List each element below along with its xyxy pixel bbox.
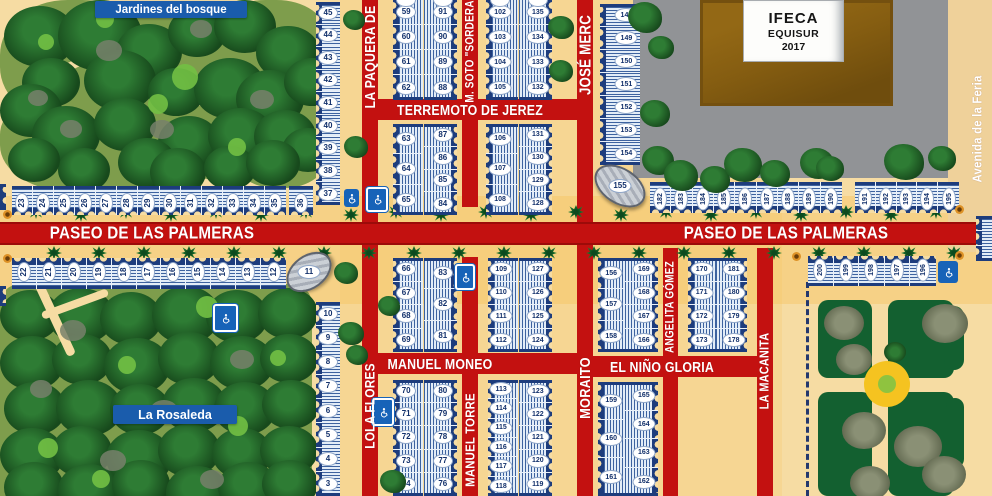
caseta-cap [938,182,959,185]
caseta: 82 [424,289,457,320]
caseta-number: 66 [396,262,416,276]
caseta-cap [424,258,457,261]
caseta: 104 [486,50,518,75]
caseta: 188 [778,182,799,213]
caseta: 122 [519,403,552,426]
caseta: 110 [488,282,518,306]
ground-patch [60,320,86,341]
caseta-cap [261,286,286,289]
caseta-group-col-45-37: 454443424140393837 [316,2,340,205]
caseta-number: 120 [526,454,549,468]
caseta-number: 36 [294,193,308,213]
caseta-number: 129 [526,173,549,187]
caseta-cap [393,124,423,127]
caseta-cap [161,286,185,289]
caseta: 5 [316,423,340,447]
wheelchair-icon [938,261,958,283]
caseta-number: 62 [396,81,416,95]
street-label-manuel-moneo: MANUEL MONEO [388,356,493,373]
caseta-number: 76 [433,477,453,491]
tree-icon [346,345,368,365]
caseta-cap [625,258,658,261]
caseta-number: 13 [241,262,255,282]
caseta-cap [393,258,423,261]
caseta-cap [625,382,658,385]
caseta: 119 [519,473,552,496]
caseta: 90 [424,25,457,50]
awning-edge [600,50,606,72]
ifeca-sign-title: IFECA [769,10,819,27]
caseta-group-row-200-196: 200199198197196 [808,256,936,286]
light-foliage [228,138,246,156]
caseta-cap [75,186,95,189]
caseta: 41 [316,92,340,115]
palm-tree-icon [568,205,584,219]
caseta: 200 [808,256,834,286]
street-label-lola-flores: LOLA FLORES [362,363,377,448]
ifeca-sign-subtitle: EQUISUR [768,28,819,40]
caseta-number: 14 [216,262,230,282]
caseta-number: 70 [396,384,416,398]
tree-cluster [262,380,320,429]
caseta-number: 5 [318,428,338,442]
caseta: 26 [75,186,96,215]
caseta-number: 110 [490,286,513,300]
caseta-group-col-102-105: 102103104105 [486,0,518,100]
scrub-patch [842,412,886,449]
caseta-cap [625,349,658,352]
caseta: 24 [33,186,54,215]
caseta: 43 [316,47,340,70]
scrub-patch [836,344,872,375]
caseta: 17 [137,258,162,289]
caseta: 27 [96,186,117,215]
caseta-number: 187 [760,188,774,211]
caseta-number: 130 [526,151,549,165]
la-rosaleda-label: La Rosaleda [113,405,237,424]
caseta-group-col-106-108: 106107108 [486,124,518,215]
caseta-group-col-169-166: 169168167166 [625,258,658,352]
caseta-number: 45 [318,6,338,20]
caseta: 149 [600,27,640,50]
caseta-cap [859,283,884,286]
caseta: 87 [424,124,457,147]
paseo-label-left: PASEO DE LAS PALMERAS [50,224,254,244]
caseta-group-caseta-36: 36 [289,186,313,215]
caseta: 129 [519,170,552,193]
boundary-dashed-line [806,282,809,496]
caseta-number: 199 [839,258,853,281]
caseta-number: 10 [318,307,338,321]
caseta [0,286,6,306]
caseta: 16 [161,258,186,289]
caseta: 106 [486,124,518,154]
caseta-number: 166 [632,333,655,347]
caseta: 10 [316,302,340,326]
caseta-number: 40 [318,119,338,133]
caseta: 86 [424,147,457,170]
caseta-number: 60 [396,30,416,44]
caseta: 61 [393,50,423,75]
caseta-number: 18 [117,262,131,282]
tree-icon [378,296,400,316]
caseta-cap [393,97,423,100]
caseta: 79 [424,403,457,426]
caseta-cap [33,186,53,189]
caseta: 196 [910,256,936,286]
caseta-cap [62,286,86,289]
street-label-terremoto-de-jerez: TERREMOTO DE JEREZ [397,102,543,119]
caseta: 36 [289,186,313,215]
wheelchair-icon [366,187,388,212]
caseta: 181 [716,258,747,282]
caseta-number: 64 [396,162,416,176]
caseta-number: 63 [396,132,416,146]
caseta: 170 [688,258,719,282]
caseta-cap [834,283,859,286]
caseta-cap [137,286,161,289]
caseta-number: 178 [722,333,745,347]
caseta: 29 [138,186,159,215]
caseta: 73 [393,450,423,473]
caseta-number: 169 [632,262,655,276]
caseta-cap [716,349,747,352]
caseta-cap [316,202,340,205]
caseta-cap [519,258,552,261]
street-label-jose-merce: JOSÉ MERC [576,15,594,95]
caseta-number: 73 [396,454,416,468]
caseta-number: 3 [318,477,338,491]
caseta [976,246,992,261]
wheelchair-icon [213,304,238,332]
caseta: 199 [834,256,860,286]
caseta: 112 [488,329,518,353]
caseta-group-col-83-81: 838281 [424,258,457,352]
caseta: 169 [625,258,658,282]
caseta-cap [598,349,628,352]
caseta-number: 87 [433,128,453,142]
caseta-number: 160 [600,432,623,446]
caseta-cap [486,124,518,127]
tree-icon [380,470,406,493]
caseta: 39 [316,137,340,160]
caseta-number: 116 [490,440,513,454]
tree-icon [628,2,662,33]
caseta-number: 24 [36,193,50,213]
caseta-number: 127 [526,262,549,276]
caseta-number: 163 [632,446,655,460]
caseta-cap [96,186,116,189]
caseta-number: 59 [396,5,416,19]
light-foliage [92,470,110,488]
light-foliage [270,350,286,366]
caseta-number: 195 [942,188,956,211]
caseta: 158 [598,321,628,352]
caseta-cap [138,186,158,189]
caseta-number: 168 [632,286,655,300]
caseta: 167 [625,305,658,329]
caseta-cap [0,286,6,289]
street-label-la-paquera-de: LA PAQUERA DE [362,6,379,109]
caseta-cap [112,286,136,289]
caseta: 81 [424,321,457,352]
caseta-number: 78 [433,430,453,444]
caseta-cap [37,286,61,289]
palm-tree-icon [361,246,377,260]
caseta-cap [202,186,222,189]
caseta-number: 119 [526,477,549,491]
caseta-cap [855,182,875,185]
caseta: 32 [202,186,223,215]
caseta-number: 200 [813,258,827,281]
caseta: 161 [598,458,628,496]
caseta: 133 [519,50,552,75]
caseta: 77 [424,450,457,473]
caseta-cap [160,186,180,189]
caseta-cap [821,182,842,185]
ground-patch [200,470,224,489]
caseta-group-row-23-35: 23242526272829303132333435 [12,186,286,215]
caseta: 178 [716,329,747,353]
caseta: 107 [486,154,518,184]
caseta-group-col-87-84: 87868584 [424,124,457,215]
caseta-number: 9 [318,331,338,345]
caseta: 154 [600,142,640,165]
caseta: 160 [598,420,628,458]
caseta: 115 [488,419,518,438]
caseta: 20 [62,258,87,289]
tree-icon [928,146,956,171]
caseta: 113 [488,380,518,399]
tree-icon [724,148,762,182]
ground-patch [100,450,126,471]
caseta-number: 16 [166,262,180,282]
caseta-number: 196 [916,258,930,281]
caseta-cap [519,349,552,352]
caseta: 85 [424,170,457,193]
lamp-icon [3,210,12,219]
street-label-m-soto-sordera: M. SOTO "SORDERA" [463,0,476,103]
caseta-number: 133 [526,55,549,69]
caseta: 131 [519,124,552,147]
caseta-cap [598,258,628,261]
caseta: 63 [393,124,423,154]
caseta-group-col-91-88: 91908988 [424,0,457,100]
caseta-number: 132 [526,81,549,95]
caseta-number: 191 [858,188,872,211]
street-label-manuel-torre: MANUEL TORRE [462,393,477,487]
tree-icon [816,156,844,181]
caseta-number: 121 [526,430,549,444]
caseta-number: 41 [318,96,338,110]
caseta: 21 [37,258,62,289]
tree-icon [338,322,364,345]
caseta-number: 150 [615,54,638,68]
caseta: 186 [735,182,756,213]
caseta: 89 [424,50,457,75]
lamp-icon [955,205,964,214]
caseta: 80 [424,380,457,403]
caseta: 182 [650,182,671,213]
caseta-cap [316,302,340,305]
palm-tree-icon [343,208,359,222]
caseta: 35 [265,186,286,215]
caseta-number: 88 [433,81,453,95]
caseta: 45 [316,2,340,25]
caseta [976,231,992,246]
caseta-cap [117,186,137,189]
caseta: 191 [855,182,876,213]
caseta-number: 134 [526,30,549,44]
caseta-number: 180 [722,286,745,300]
caseta: 156 [598,258,628,289]
caseta: 173 [688,329,719,353]
tree-icon [664,160,698,191]
caseta-cap [0,303,6,306]
caseta-cap [808,283,833,286]
caseta-number: 6 [318,404,338,418]
caseta: 4 [316,448,340,472]
caseta: 25 [54,186,75,215]
caseta [976,216,992,231]
caseta: 9 [316,326,340,350]
caseta-number: 65 [396,193,416,207]
caseta: 19 [87,258,112,289]
caseta-cap [244,186,264,189]
caseta-cap [393,212,423,215]
caseta: 30 [160,186,181,215]
caseta-number: 114 [490,401,513,415]
caseta-number: 15 [191,262,205,282]
caseta-cap [393,380,423,383]
caseta-cap [486,212,518,215]
caseta-number: 173 [690,333,713,347]
awning-edge [600,4,606,26]
caseta-number: 67 [396,286,416,300]
scrub-patch [922,456,966,493]
caseta-number: 149 [615,31,638,45]
caseta-number: 79 [433,407,453,421]
caseta-number: 20 [67,262,81,282]
ground-patch [250,90,274,109]
caseta-group-col-113-118: 113114115116117118 [488,380,518,496]
caseta-number: 80 [433,384,453,398]
caseta-number: 44 [318,28,338,42]
caseta-group-col-59-62: 59606162 [393,0,423,100]
caseta-number: 90 [433,30,453,44]
light-foliage [38,438,58,458]
ground-patch [96,40,122,61]
palm-tree-icon [613,208,629,222]
caseta: 159 [598,382,628,420]
caseta-number: 82 [433,297,453,311]
caseta-number: 68 [396,309,416,323]
caseta-number: 109 [490,262,513,276]
caseta-group-col-10-3: 109876543 [316,302,340,496]
lamp-icon [3,254,12,263]
caseta: 33 [223,186,244,215]
caseta-number: 122 [526,407,549,421]
awning-edge [600,119,606,141]
caseta: 150 [600,50,640,73]
caseta: 44 [316,25,340,48]
caseta: 76 [424,473,457,496]
caseta-cap [181,186,201,189]
caseta: 134 [519,25,552,50]
caseta: 180 [716,282,747,306]
caseta: 197 [885,256,911,286]
caseta: 71 [393,403,423,426]
caseta: 105 [486,75,518,100]
caseta: 121 [519,426,552,449]
palm-tree-icon [766,246,782,260]
caseta-number: 30 [163,193,177,213]
caseta-number: 115 [490,421,513,435]
caseta-number: 111 [490,309,513,323]
street-label-la-macanita: LA MACANITA [758,333,771,410]
caseta-number: 17 [141,262,155,282]
stage-number: 155 [609,179,632,193]
tree-icon [549,60,573,82]
caseta-number: 104 [489,55,512,69]
caseta: 123 [519,380,552,403]
caseta-number: 102 [489,5,512,19]
ifeca-sign: IFECA EQUISUR 2017 [743,0,844,62]
caseta-group-col-edge-right [976,216,992,261]
caseta: 23 [12,186,33,215]
caseta-number: 103 [489,30,512,44]
caseta-group-edge-left-b [0,286,6,306]
caseta-cap [424,349,457,352]
caseta: 7 [316,375,340,399]
caseta-number: 156 [600,266,623,280]
caseta-cap [897,182,917,185]
caseta: 38 [316,160,340,183]
caseta-number: 125 [526,309,549,323]
caseta-group-col-165-162: 165164163162 [625,382,658,496]
caseta-number: 61 [396,55,416,69]
caseta-cap [12,286,36,289]
ground-patch [30,380,52,398]
light-foliage [148,94,168,114]
stage-number: 11 [298,265,321,279]
caseta-cap [519,124,552,127]
wheelchair-icon [455,264,475,290]
caseta-number: 167 [632,309,655,323]
caseta-number: 22 [17,262,31,282]
caseta: 83 [424,258,457,289]
caseta: 88 [424,75,457,100]
caseta-number: 12 [267,262,281,282]
caseta: 163 [625,439,658,468]
caseta: 37 [316,182,340,205]
avenida-de-la-feria-label: Avenida de la Feria [969,75,984,182]
caseta-group-col-127-124: 127126125124 [519,258,552,352]
caseta-number: 158 [600,329,623,343]
caseta: 15 [186,258,211,289]
caseta: 125 [519,305,552,329]
caseta-number: 161 [600,470,623,484]
ground-patch [230,350,254,369]
caseta-cap [486,97,518,100]
caseta-cap [735,182,755,185]
caseta: 192 [876,182,897,213]
caseta: 31 [181,186,202,215]
caseta: 151 [600,73,640,96]
awning-edge [600,96,606,118]
caseta-number: 31 [184,193,198,213]
caseta: 62 [393,75,423,100]
